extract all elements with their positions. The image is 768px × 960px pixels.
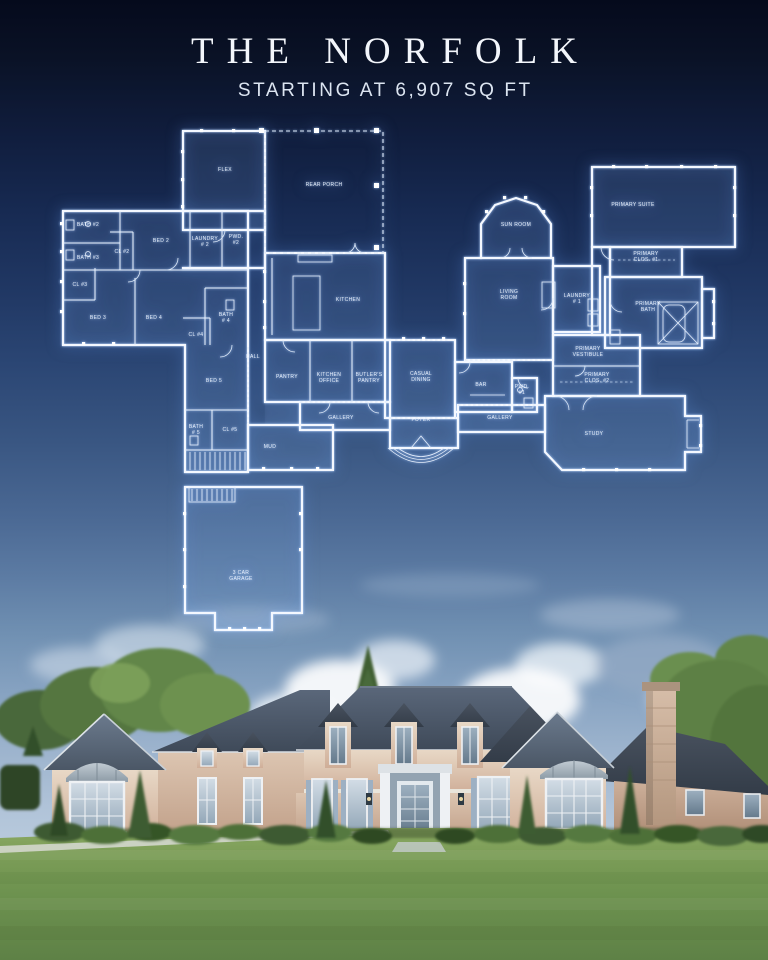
header: THE NORFOLK STARTING AT 6,907 SQ FT	[0, 30, 768, 102]
room-label-primary-clos-2: PRIMARYCLOS. #2	[584, 372, 609, 384]
room-label-primary-vestibule: PRIMARYVESTIBULE	[573, 346, 604, 358]
room-label-living-room: LIVINGROOM	[500, 289, 519, 301]
norfolk-poster: THE NORFOLK STARTING AT 6,907 SQ FT	[0, 0, 768, 960]
room-label-mud: MUD	[264, 444, 276, 450]
room-label-bar: BAR	[475, 382, 486, 388]
room-label-bed-3: BED 3	[90, 315, 106, 321]
blueprint-floor-plan: FLEXREAR PORCHSUN ROOMPRIMARY SUITEBATH …	[60, 128, 736, 630]
room-label-cl-3: CL #3	[73, 282, 88, 288]
room-label-kitchen: KITCHEN	[336, 297, 360, 303]
room-label-bed-2: BED 2	[153, 238, 169, 244]
chimney	[642, 682, 680, 825]
room-label-primary-suite: PRIMARY SUITE	[611, 202, 655, 208]
room-label-bed-4: BED 4	[146, 315, 162, 321]
scene: FLEXREAR PORCHSUN ROOMPRIMARY SUITEBATH …	[0, 0, 768, 960]
plan-title: THE NORFOLK	[0, 30, 768, 73]
room-label-cl-4: CL #4	[189, 332, 204, 338]
room-label-gallery-west: GALLERY	[328, 415, 354, 421]
room-label-primary-clos-1: PRIMARYCLOS. #1	[633, 251, 658, 263]
room-label-cl-2: CL #2	[115, 249, 130, 255]
entry-walkway	[392, 842, 446, 852]
room-label-foyer: FOYER	[412, 417, 431, 423]
room-label-bed-5: BED 5	[206, 378, 222, 384]
room-label-bath-2: BATH #2	[77, 222, 99, 228]
room-label-study: STUDY	[585, 431, 604, 437]
room-label-bath-3: BATH #3	[77, 255, 99, 261]
room-label-casual-dining: CASUALDINING	[410, 371, 432, 383]
blueprint-porch-outline	[265, 131, 383, 253]
room-label-pantry: PANTRY	[276, 374, 298, 380]
room-label-kitchen-office: KITCHENOFFICE	[317, 372, 341, 384]
lawn	[0, 828, 768, 960]
room-label-rear-porch: REAR PORCH	[306, 182, 343, 188]
room-label-hall: HALL	[246, 354, 260, 360]
room-label-flex: FLEX	[218, 167, 232, 173]
room-label-gallery-east: GALLERY	[487, 415, 513, 421]
room-label-cl-5: CL #5	[223, 427, 238, 433]
center-dormers	[318, 703, 490, 768]
room-label-butlers-pantry: BUTLER'SPANTRY	[356, 372, 383, 384]
room-label-sun-room: SUN ROOM	[501, 222, 531, 228]
plan-subtitle: STARTING AT 6,907 SQ FT	[0, 80, 768, 102]
